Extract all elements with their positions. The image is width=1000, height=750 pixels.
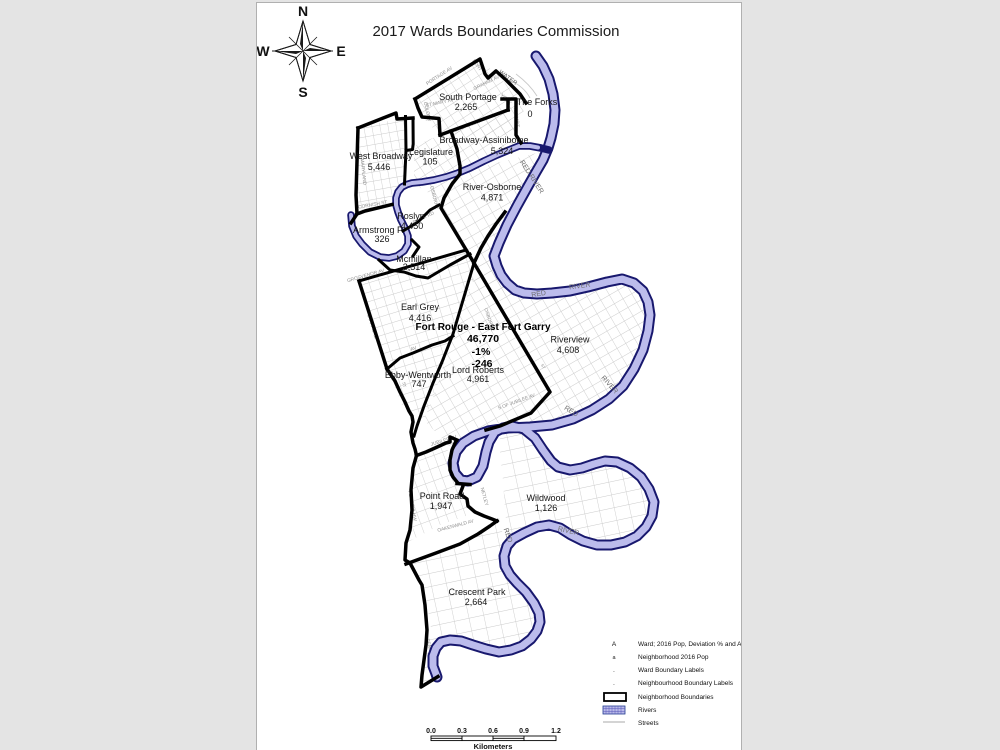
svg-text:0.6: 0.6: [488, 728, 498, 735]
svg-text:Streets: Streets: [638, 720, 659, 727]
svg-text:1,126: 1,126: [535, 503, 558, 513]
svg-text:-246: -246: [471, 358, 492, 370]
svg-text:5,446: 5,446: [368, 162, 391, 172]
svg-text:4,608: 4,608: [557, 345, 580, 355]
svg-text:4,871: 4,871: [481, 193, 504, 203]
svg-text:South Portage: South Portage: [439, 92, 497, 102]
svg-text:E: E: [336, 43, 345, 59]
svg-text:River-Osborne: River-Osborne: [463, 182, 522, 192]
svg-text:4,450: 4,450: [401, 221, 424, 231]
svg-text:0: 0: [527, 109, 532, 119]
svg-text:0.3: 0.3: [457, 728, 467, 735]
svg-text:0.9: 0.9: [519, 728, 529, 735]
svg-text:Kilometers: Kilometers: [474, 742, 513, 750]
svg-text:Point Road: Point Road: [420, 491, 465, 501]
svg-text:Wildwood: Wildwood: [526, 493, 565, 503]
svg-text:5,324: 5,324: [491, 146, 514, 156]
svg-text:46,770: 46,770: [467, 333, 499, 345]
svg-text:A: A: [612, 641, 617, 648]
svg-text:Ward Boundary Labels: Ward Boundary Labels: [638, 667, 705, 674]
svg-text:2,265: 2,265: [455, 102, 478, 112]
svg-text:-1%: -1%: [472, 346, 491, 358]
svg-text:Neighbourhood Boundary Labels: Neighbourhood Boundary Labels: [638, 680, 734, 687]
svg-text:105: 105: [422, 157, 437, 167]
svg-text:Legislature: Legislature: [409, 147, 453, 157]
svg-text:N: N: [298, 3, 308, 19]
svg-text:Fort Rouge - East Fort Garry: Fort Rouge - East Fort Garry: [415, 322, 550, 333]
svg-text:Rivers: Rivers: [638, 707, 657, 714]
svg-text:4,961: 4,961: [467, 374, 490, 384]
svg-text:Roslyn: Roslyn: [397, 211, 425, 221]
svg-text:S: S: [298, 84, 307, 100]
svg-text:Neighborhood 2016 Pop: Neighborhood 2016 Pop: [638, 654, 709, 661]
svg-text:1,947: 1,947: [430, 501, 453, 511]
svg-text:0.0: 0.0: [426, 728, 436, 735]
svg-text:Crescent Park: Crescent Park: [448, 587, 506, 597]
svg-text:West Broadway: West Broadway: [350, 151, 413, 161]
svg-text:Broadway-Assiniboine: Broadway-Assiniboine: [439, 135, 528, 145]
svg-text:747: 747: [411, 379, 426, 389]
svg-text:2,664: 2,664: [465, 597, 488, 607]
svg-text:The Forks: The Forks: [517, 97, 558, 107]
svg-text:Ward; 2016 Pop, Deviation % an: Ward; 2016 Pop, Deviation % and Amt: [638, 641, 749, 648]
svg-text:326: 326: [374, 234, 389, 244]
svg-text:2017 Wards Boundaries Commissi: 2017 Wards Boundaries Commission: [372, 23, 619, 40]
svg-text:3,514: 3,514: [403, 262, 426, 272]
svg-text:1.2: 1.2: [551, 728, 561, 735]
svg-text:Earl Grey: Earl Grey: [401, 302, 440, 312]
svg-text:Riverview: Riverview: [550, 335, 590, 345]
svg-text:W: W: [256, 43, 270, 59]
svg-text:Neighborhood Boundaries: Neighborhood Boundaries: [638, 694, 714, 701]
